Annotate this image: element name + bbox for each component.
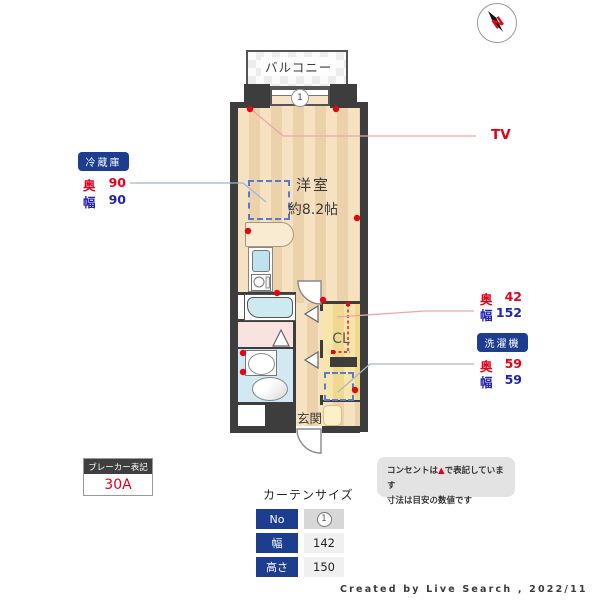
entrance-label: 玄関 [296,408,323,427]
balcony-label: バルコニー [261,57,336,76]
window-number-marker: 1 [291,89,309,107]
curtain-row-height-value: 150 [304,557,344,577]
wall-window-block-left [244,84,270,108]
washer-badge-label: 洗濯機 [485,335,521,350]
kitchen-sink [252,250,270,272]
washer-space-dashed-box [324,372,354,401]
width-value: 59 [505,372,522,391]
washbasin-unit [245,350,277,376]
curtain-row-width-value: 142 [304,533,344,553]
width-value: 152 [496,305,522,324]
entrance-tile [323,405,342,426]
cell-text: 幅 [272,535,283,551]
note-text: コンセントは [387,466,438,476]
circled-number: 1 [321,514,326,524]
entrance-step-block [265,405,296,426]
cell-text: 142 [313,536,335,550]
tv-label: TV [491,127,511,143]
cell-text: 150 [313,560,335,574]
width-label: 幅 [480,372,493,391]
wall-washroom-toilet [238,347,293,349]
width-label: 幅 [480,305,493,324]
breaker-header: ブレーカー表記 [84,459,152,474]
fridge-width-row: 幅 90 [83,192,126,211]
note-box: コンセントは▲で表記しています 寸法は目安の数値です [377,457,515,497]
entry-door-arc-icon [297,429,321,453]
note-line1: コンセントは▲で表記しています [387,464,505,494]
credit-text: Created by Live Search , 2022/11 [340,584,588,595]
bathtub [244,294,296,321]
wall-left [230,102,238,432]
washer-badge: 洗濯機 [477,333,528,352]
cell-text: No [270,513,285,526]
fridge-badge-label: 冷蔵庫 [86,154,122,169]
wall-corner-left [230,102,244,108]
wall-corner-right [357,102,368,108]
curtain-row-no-label: No [256,509,298,529]
floorplan-page: N バルコニー 1 [0,0,600,600]
room-label: 洋室 [288,174,338,195]
wall-closet-stub2 [320,340,323,358]
breaker-value: 30A [84,474,152,495]
kitchen-counter [245,222,294,247]
width-value: 90 [109,192,126,211]
wall-closet-stub1 [320,301,323,311]
width-label: 幅 [83,192,96,211]
note-line2: 寸法は目安の数値です [387,494,505,509]
compass-icon: N [477,3,517,43]
washer-width-row: 幅 59 [480,372,522,391]
window-number: 1 [297,93,303,103]
closet-shelf-block [330,357,357,367]
closet-width-row: 幅 152 [480,305,522,324]
breaker-box: ブレーカー表記 30A [83,458,153,496]
kitchen-stove [251,274,271,291]
fridge-badge: 冷蔵庫 [78,152,129,171]
curtain-row-height-label: 高さ [256,557,298,577]
circled-number-icon: 1 [317,512,332,527]
cell-text: 高さ [266,559,288,575]
washbasin-bowl [248,353,275,375]
curtain-title: カーテンサイズ [263,486,354,503]
entry-notch [238,405,265,426]
washroom-floor [238,322,294,347]
breaker-title: ブレーカー表記 [88,461,148,473]
curtain-row-no-value: 1 [304,509,344,529]
wall-bottom-right [322,426,360,433]
wall-right [360,102,368,432]
curtain-row-width-label: 幅 [256,533,298,553]
toilet [252,377,288,401]
wall-bottom-left [230,426,296,433]
room-size-label: 約8.2帖 [283,199,343,219]
closet-label: CL [330,331,352,347]
wall-closet-top [322,301,360,304]
wall-window-block-right [330,84,357,108]
